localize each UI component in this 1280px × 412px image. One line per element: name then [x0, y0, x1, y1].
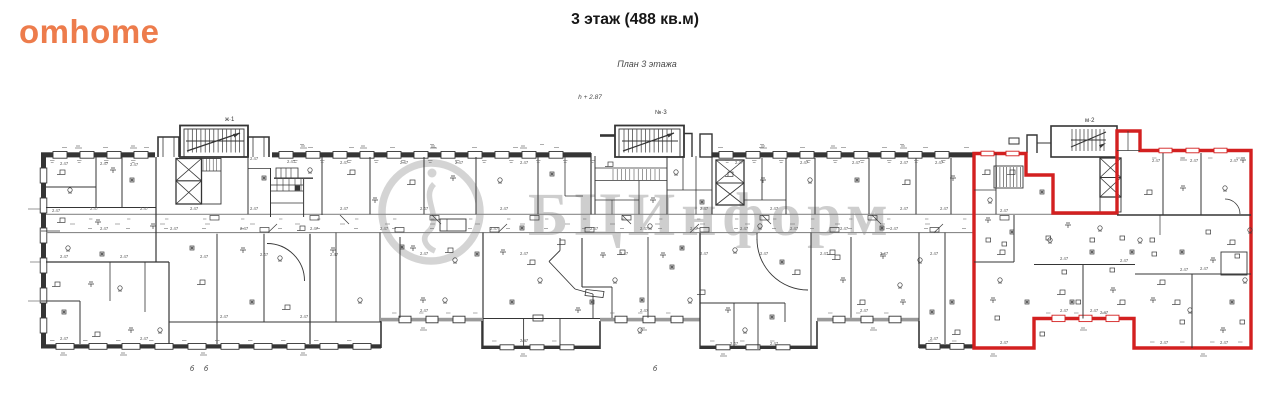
svg-text:2.47: 2.47 — [760, 251, 769, 256]
svg-text:2.47: 2.47 — [260, 252, 269, 257]
svg-text:2.47: 2.47 — [90, 206, 99, 211]
svg-text:2.47: 2.47 — [250, 156, 259, 161]
svg-text:2.47: 2.47 — [770, 341, 779, 346]
svg-text:2.47: 2.47 — [860, 308, 869, 313]
svg-text:2.47: 2.47 — [52, 208, 61, 213]
svg-text:2.47: 2.47 — [1100, 310, 1109, 315]
svg-text:2.47: 2.47 — [420, 251, 429, 256]
svg-text:№·3: №·3 — [655, 109, 667, 116]
svg-text:2.47: 2.47 — [730, 341, 739, 346]
svg-text:2.47: 2.47 — [590, 226, 599, 231]
svg-text:2.47: 2.47 — [852, 160, 861, 165]
svg-text:2.47: 2.47 — [880, 251, 889, 256]
svg-text:2.47: 2.47 — [520, 160, 529, 165]
svg-text:omhome: omhome — [19, 13, 160, 50]
svg-text:2.47: 2.47 — [490, 226, 499, 231]
svg-text:2.47: 2.47 — [200, 254, 209, 259]
svg-text:2.47: 2.47 — [900, 206, 909, 211]
svg-text:2.47: 2.47 — [60, 254, 69, 259]
svg-text:2.47: 2.47 — [1220, 340, 1229, 345]
svg-text:2.47: 2.47 — [340, 160, 349, 165]
svg-text:2.47: 2.47 — [840, 226, 849, 231]
svg-text:2.47: 2.47 — [700, 206, 709, 211]
svg-text:2.47: 2.47 — [770, 206, 779, 211]
svg-text:План 3 этажа: План 3 этажа — [617, 59, 677, 69]
svg-text:h + 2.87: h + 2.87 — [578, 94, 602, 101]
svg-text:БЦИнформ: БЦИнформ — [528, 182, 894, 249]
svg-text:м·2: м·2 — [1085, 118, 1095, 124]
svg-text:2.47: 2.47 — [520, 251, 529, 256]
svg-text:2.47: 2.47 — [1230, 158, 1239, 163]
svg-text:2.47: 2.47 — [380, 226, 389, 231]
svg-text:2.47: 2.47 — [100, 161, 109, 166]
svg-text:2.47: 2.47 — [890, 226, 899, 231]
svg-text:2.47: 2.47 — [1060, 256, 1069, 261]
svg-text:2.47: 2.47 — [120, 254, 129, 259]
svg-text:2.47: 2.47 — [900, 160, 909, 165]
svg-text:2.47: 2.47 — [690, 226, 699, 231]
svg-text:2.47: 2.47 — [310, 226, 319, 231]
svg-text:2.47: 2.47 — [170, 226, 179, 231]
svg-text:2.47: 2.47 — [140, 206, 149, 211]
svg-text:2.47: 2.47 — [1160, 340, 1169, 345]
svg-text:2.47: 2.47 — [620, 251, 629, 256]
svg-text:2.47: 2.47 — [220, 314, 229, 319]
svg-text:2.47: 2.47 — [287, 159, 296, 164]
svg-text:2.47: 2.47 — [1090, 308, 1099, 313]
svg-text:2.47: 2.47 — [800, 160, 809, 165]
svg-text:2.47: 2.47 — [190, 206, 199, 211]
svg-text:3 этаж (488 кв.м): 3 этаж (488 кв.м) — [571, 11, 699, 28]
svg-text:2.47: 2.47 — [400, 160, 409, 165]
svg-text:2.47: 2.47 — [1180, 267, 1189, 272]
svg-text:2.47: 2.47 — [100, 226, 109, 231]
svg-text:2.47: 2.47 — [60, 336, 69, 341]
svg-text:2.47: 2.47 — [1152, 158, 1161, 163]
svg-text:2.47: 2.47 — [420, 308, 429, 313]
svg-text:2.47: 2.47 — [1000, 208, 1009, 213]
svg-text:2.47: 2.47 — [1120, 258, 1129, 263]
svg-text:2.47: 2.47 — [640, 308, 649, 313]
svg-text:2.47: 2.47 — [1200, 266, 1209, 271]
svg-text:2.47: 2.47 — [520, 338, 529, 343]
svg-text:2.47: 2.47 — [420, 206, 429, 211]
svg-text:2.47: 2.47 — [300, 314, 309, 319]
svg-text:2.47: 2.47 — [700, 251, 709, 256]
svg-text:2.47: 2.47 — [790, 226, 799, 231]
svg-text:2.47: 2.47 — [500, 206, 509, 211]
svg-text:2.47: 2.47 — [340, 206, 349, 211]
svg-text:2.47: 2.47 — [735, 160, 744, 165]
svg-text:2.47: 2.47 — [1000, 340, 1009, 345]
svg-text:2.47: 2.47 — [330, 252, 339, 257]
svg-text:2.47: 2.47 — [250, 206, 259, 211]
svg-text:2.47: 2.47 — [935, 160, 944, 165]
svg-text:2.47: 2.47 — [740, 226, 749, 231]
svg-text:2.47: 2.47 — [940, 206, 949, 211]
svg-text:2.47: 2.47 — [1190, 158, 1199, 163]
svg-text:2.47: 2.47 — [640, 226, 649, 231]
svg-text:2.47: 2.47 — [820, 251, 829, 256]
svg-text:2.47: 2.47 — [1060, 308, 1069, 313]
svg-text:2.47: 2.47 — [240, 226, 249, 231]
svg-text:2.47: 2.47 — [130, 162, 139, 167]
svg-text:ж·1: ж·1 — [225, 117, 235, 123]
svg-text:2.47: 2.47 — [930, 336, 939, 341]
svg-text:2.47: 2.47 — [60, 161, 69, 166]
svg-text:2.47: 2.47 — [140, 336, 149, 341]
svg-text:2.47: 2.47 — [455, 160, 464, 165]
svg-text:2.47: 2.47 — [930, 251, 939, 256]
